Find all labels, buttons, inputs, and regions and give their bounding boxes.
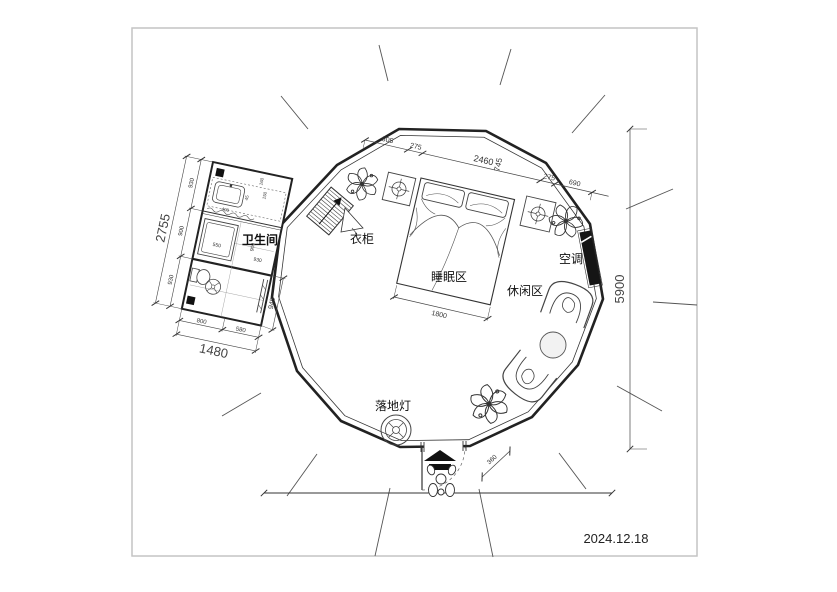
air-conditioner-label: 空调 [559, 252, 583, 266]
dim-930-bottom: 930 [168, 274, 176, 286]
roof-ray [617, 386, 662, 411]
leisure-area-label: 休闲区 [507, 284, 543, 298]
roof-ray [479, 489, 493, 557]
dim-930-top: 930 [188, 177, 196, 189]
roof-ray [222, 393, 261, 416]
dim-800: 800 [196, 318, 208, 326]
roof-ray [379, 45, 388, 81]
floor-plan-page: 805 275 2460 745 275 690 5900 400 160 15… [0, 0, 837, 592]
duct-marker [215, 168, 224, 177]
dim-580: 580 [235, 326, 247, 334]
duct-marker [186, 296, 195, 305]
floor-lamp-label: 落地灯 [375, 399, 411, 413]
roof-ray [500, 49, 511, 85]
entrance [421, 441, 466, 497]
round-table [540, 332, 566, 358]
floor-lamp-icon [381, 415, 411, 445]
nightstand-right [520, 196, 556, 232]
dim-1480: 1480 [198, 340, 229, 361]
wardrobe-label: 衣柜 [350, 231, 374, 246]
roof-ray [626, 189, 673, 209]
roof-ray [559, 453, 586, 489]
sleeping-area-label: 睡眠区 [431, 270, 467, 284]
dim-5900: 5900 [612, 275, 627, 304]
bathroom-label: 卫生间 [242, 232, 278, 247]
date-stamp: 2024.12.18 [583, 531, 648, 546]
entry-side-dimension: 360 [474, 442, 515, 481]
dim-2755: 2755 [152, 212, 173, 243]
right-total-dimension: 5900 [612, 126, 647, 452]
roof-ray [572, 95, 605, 133]
nightstand-left [382, 172, 416, 206]
floor-plan-drawing: 805 275 2460 745 275 690 5900 400 160 15… [0, 0, 837, 592]
roof-ray [653, 302, 697, 305]
roof-ray [287, 454, 317, 496]
roof-ray [281, 96, 308, 129]
dim-360: 360 [486, 453, 499, 466]
dim-900-mid: 900 [178, 225, 186, 237]
roof-ray [375, 488, 390, 556]
